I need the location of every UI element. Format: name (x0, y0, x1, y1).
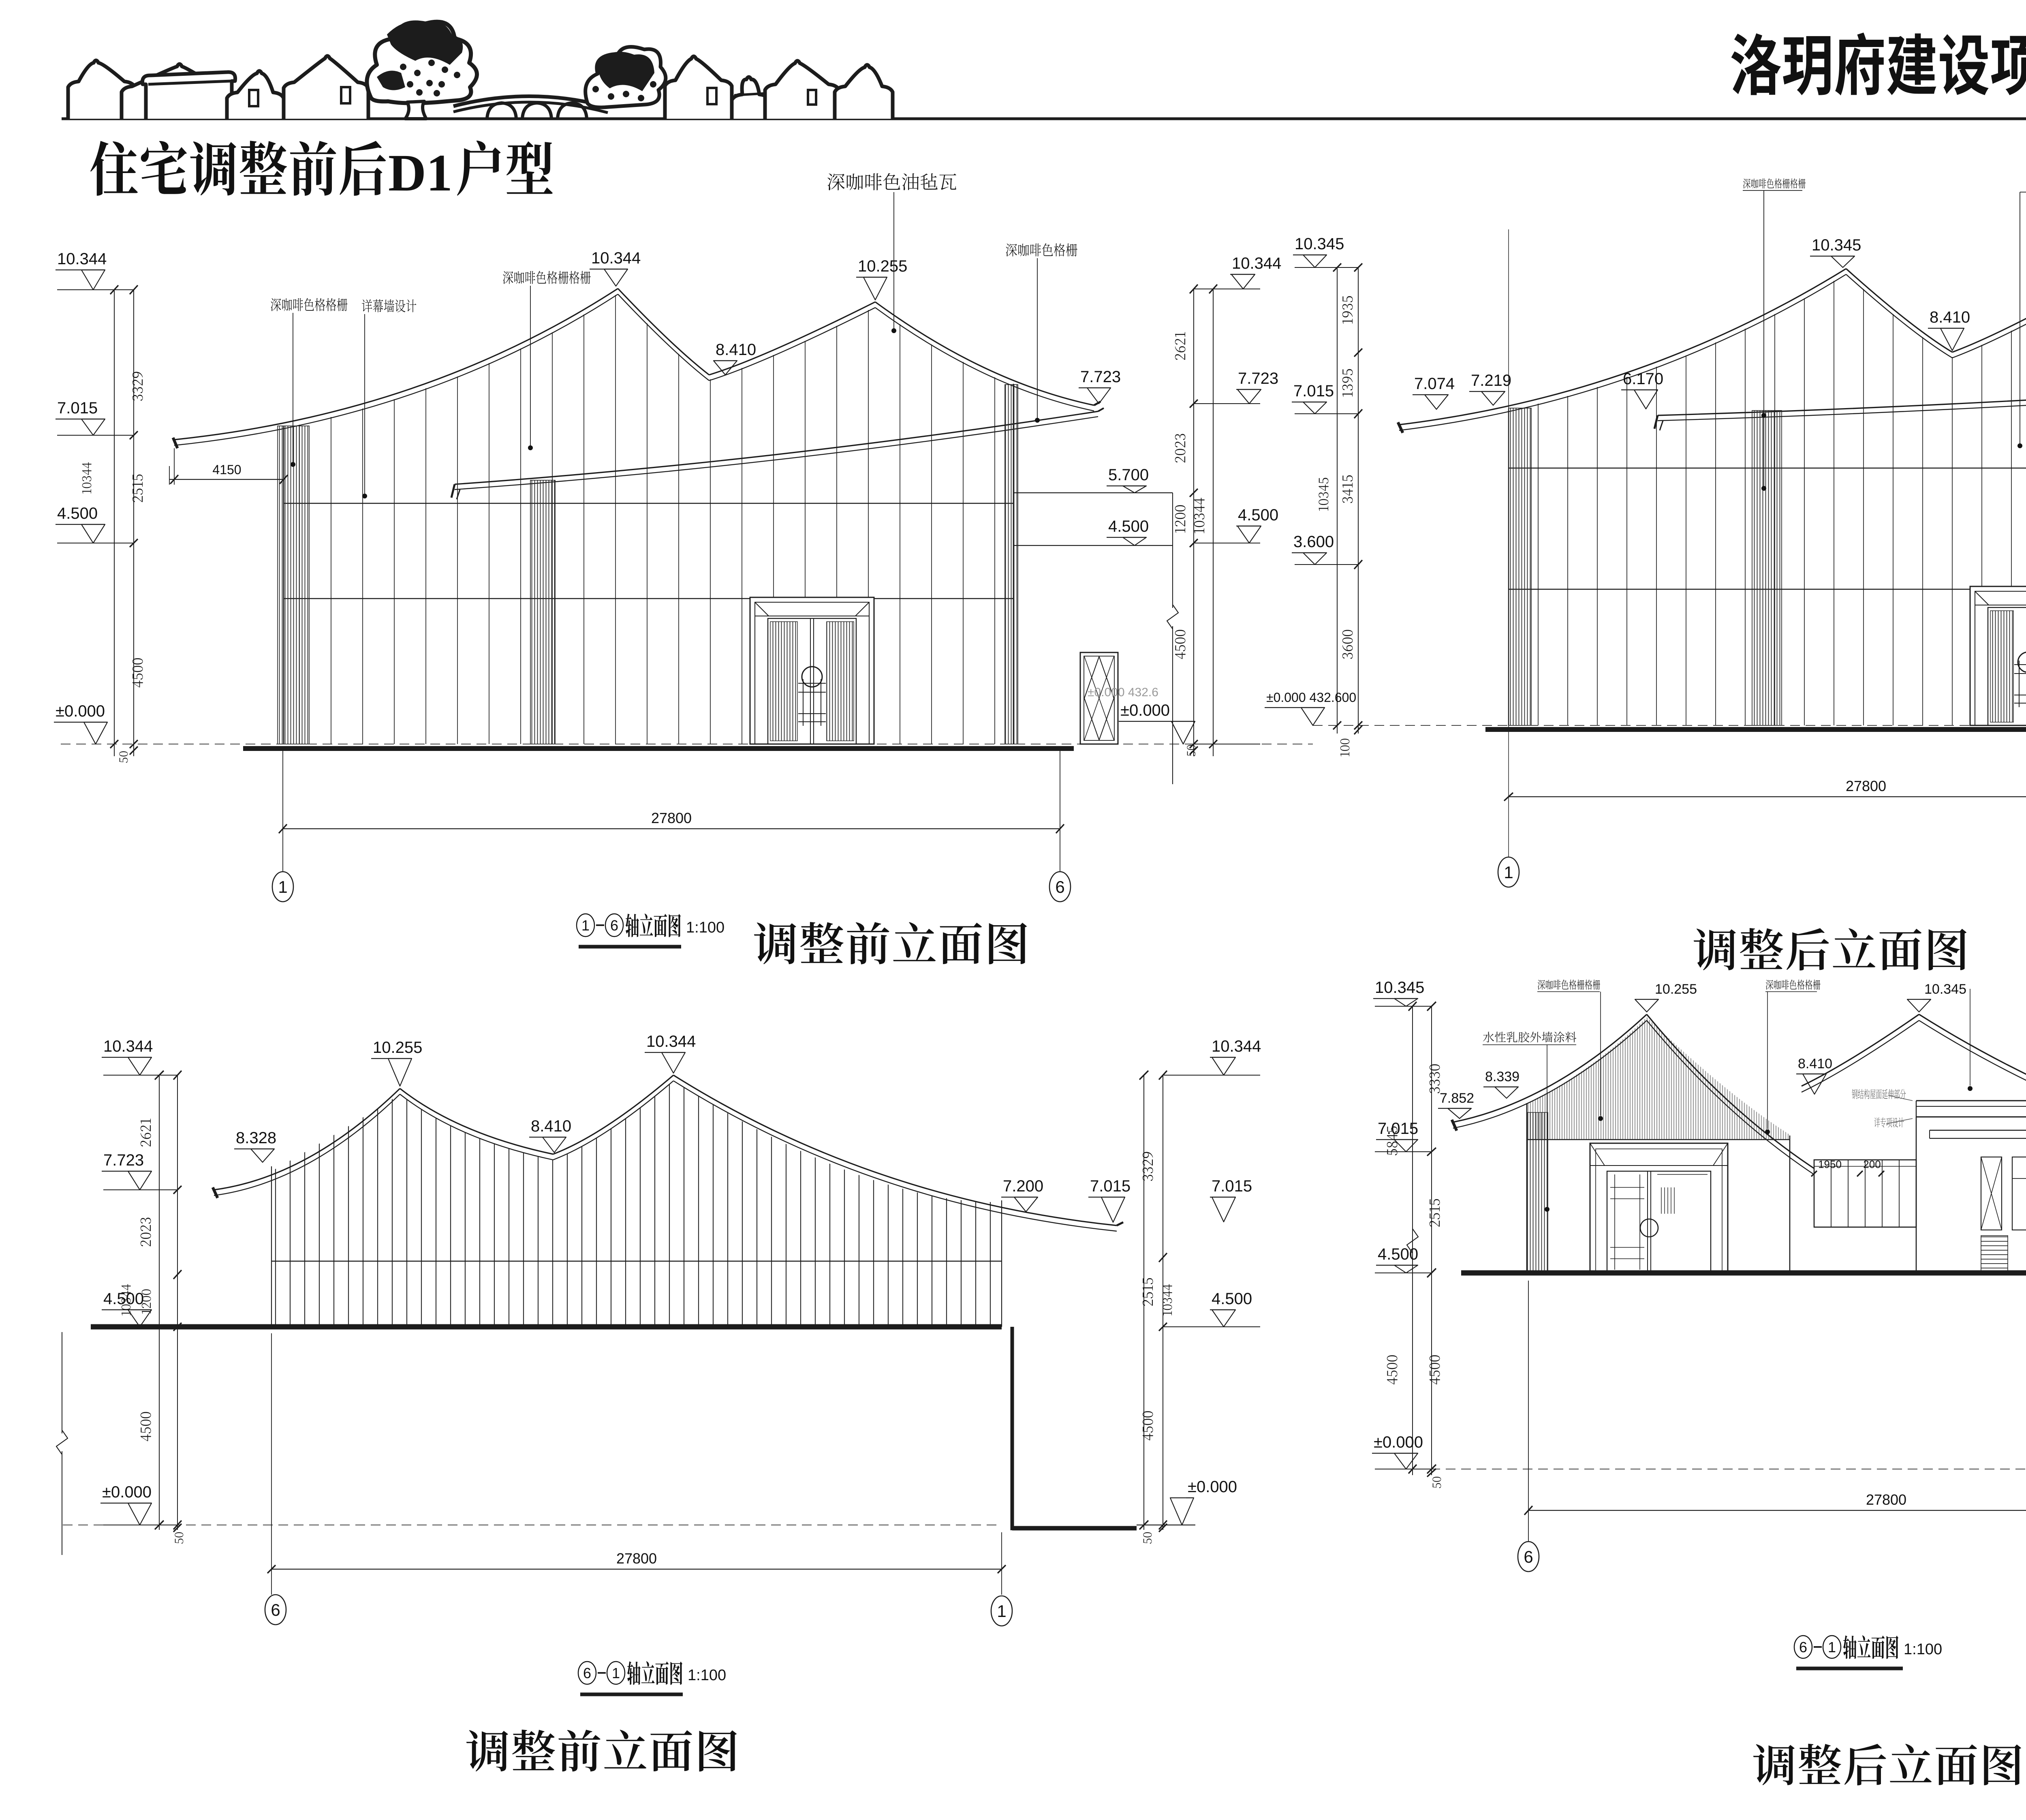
svg-text:1: 1 (997, 1602, 1006, 1621)
svg-text:4.500: 4.500 (57, 505, 98, 522)
svg-text:10.344: 10.344 (646, 1033, 696, 1050)
svg-text:5.700: 5.700 (1108, 466, 1149, 484)
svg-text:7.852: 7.852 (1440, 1091, 1474, 1106)
svg-text:7.723: 7.723 (1238, 370, 1278, 387)
svg-text:10.344: 10.344 (1212, 1037, 1261, 1055)
svg-text:7.015: 7.015 (1378, 1120, 1418, 1138)
svg-text:6: 6 (1055, 877, 1064, 896)
svg-text:7.200: 7.200 (1003, 1177, 1043, 1195)
svg-text:7.723: 7.723 (1080, 368, 1121, 386)
svg-text:10.345: 10.345 (1375, 979, 1424, 997)
svg-text:27800: 27800 (616, 1550, 657, 1567)
svg-text:±0.000: ±0.000 (1120, 701, 1170, 719)
svg-text:1:100: 1:100 (1904, 1641, 1942, 1658)
svg-text:8.410: 8.410 (1930, 308, 1970, 326)
svg-text:1: 1 (1504, 863, 1513, 882)
svg-text:27800: 27800 (1846, 778, 1886, 794)
svg-text:1:100: 1:100 (688, 1667, 726, 1684)
svg-text:6: 6 (1524, 1547, 1533, 1566)
svg-text:7.015: 7.015 (1293, 382, 1334, 400)
svg-text:±0.000: ±0.000 (1188, 1478, 1237, 1496)
svg-text:6.170: 6.170 (1623, 370, 1663, 388)
svg-text:10.255: 10.255 (858, 257, 907, 275)
svg-text:7.015: 7.015 (1090, 1177, 1131, 1195)
svg-text:7.723: 7.723 (103, 1151, 144, 1169)
svg-text:±0.000 432.600: ±0.000 432.600 (1266, 690, 1356, 705)
svg-text:10.344: 10.344 (103, 1037, 153, 1055)
svg-text:7.219: 7.219 (1471, 372, 1511, 389)
svg-text:4.500: 4.500 (1108, 518, 1149, 535)
svg-text:10.345: 10.345 (1295, 235, 1344, 253)
svg-text:6: 6 (583, 1665, 591, 1681)
svg-text:±0.000: ±0.000 (56, 702, 105, 720)
svg-text:1: 1 (278, 877, 287, 896)
svg-text:8.328: 8.328 (236, 1129, 276, 1147)
svg-text:±0.000: ±0.000 (102, 1483, 152, 1501)
svg-text:1: 1 (1828, 1639, 1836, 1655)
svg-text:8.410: 8.410 (716, 341, 756, 359)
svg-text:7.015: 7.015 (1212, 1177, 1252, 1195)
svg-text:10.344: 10.344 (1232, 255, 1281, 272)
svg-text:27800: 27800 (1866, 1491, 1906, 1508)
svg-text:8.339: 8.339 (1485, 1069, 1519, 1084)
svg-text:10.344: 10.344 (591, 249, 641, 267)
svg-text:10.345: 10.345 (1924, 982, 1966, 997)
svg-text:10.344: 10.344 (57, 250, 107, 268)
svg-text:±0.000 432.6: ±0.000 432.6 (1088, 686, 1158, 699)
svg-text:6: 6 (271, 1600, 280, 1619)
svg-text:3.600: 3.600 (1293, 533, 1334, 551)
svg-text:10.255: 10.255 (1655, 982, 1697, 997)
svg-text:1: 1 (581, 917, 590, 934)
svg-text:4150: 4150 (212, 462, 241, 477)
svg-text:8.410: 8.410 (1798, 1056, 1832, 1071)
svg-text:10.345: 10.345 (1812, 236, 1861, 254)
svg-text:7.015: 7.015 (57, 399, 98, 417)
svg-text:7.074: 7.074 (1414, 375, 1455, 393)
svg-text:4.500: 4.500 (1378, 1245, 1418, 1263)
svg-text:10.255: 10.255 (373, 1039, 422, 1056)
svg-text:4.500: 4.500 (1212, 1290, 1252, 1308)
svg-text:200: 200 (1863, 1158, 1881, 1170)
svg-text:27800: 27800 (651, 810, 692, 826)
svg-text:D1: D1 (388, 144, 453, 202)
svg-text:1: 1 (612, 1665, 620, 1681)
svg-text:1:100: 1:100 (686, 919, 724, 936)
svg-text:±0.000: ±0.000 (1374, 1433, 1423, 1451)
svg-text:6: 6 (610, 917, 618, 934)
svg-text:1950: 1950 (1818, 1158, 1842, 1170)
svg-text:8.410: 8.410 (531, 1117, 571, 1135)
svg-text:4.500: 4.500 (1238, 506, 1278, 524)
svg-text:6: 6 (1799, 1639, 1807, 1655)
